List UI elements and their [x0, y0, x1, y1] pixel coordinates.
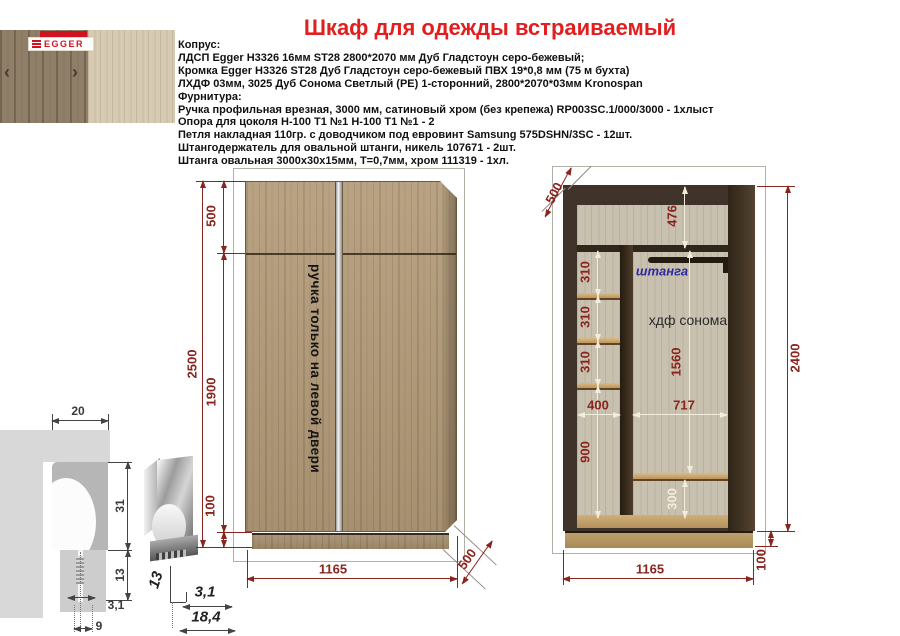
- dim-profile-height: 13: [145, 569, 166, 590]
- interior-plinth: [565, 531, 753, 548]
- dim-line-310b: [597, 296, 598, 341]
- dim-line-front-1900: [223, 253, 224, 532]
- ext-line: [217, 532, 252, 533]
- dim-line-front-100: [223, 532, 224, 547]
- dim-line-handle-13: [127, 550, 128, 600]
- dim-front-doors-height: 1900: [204, 378, 219, 407]
- dim-line-476: [684, 187, 685, 248]
- interior-right-panel: [728, 185, 755, 531]
- ext-line: [217, 253, 245, 254]
- ext-line: [196, 547, 252, 548]
- spec-line: Фурнитура:: [178, 91, 743, 104]
- dim-plinth: 100: [754, 549, 769, 571]
- dim-handle-body-height: 31: [113, 499, 127, 512]
- dim-front-total-height: 2500: [185, 350, 200, 379]
- dim-line-front-500: [223, 181, 224, 253]
- egger-logo-icon: [32, 40, 41, 49]
- dim-shelf-gap-2: 310: [578, 306, 593, 328]
- dim-front-plinth: 100: [203, 495, 218, 517]
- front-plinth: [252, 533, 449, 549]
- dim-line-handle-9: [74, 628, 92, 629]
- spec-line: Штангодержатель для овальной штанги, ник…: [178, 142, 743, 155]
- dim-profile-slot: 3,1: [195, 584, 216, 601]
- dim-line-300: [684, 480, 685, 518]
- rod-bracket: [723, 257, 728, 273]
- spec-line: ЛДСП Egger Н3326 16мм ST28 2800*2070 мм …: [178, 52, 743, 65]
- dim-front-top-section: 500: [204, 205, 219, 227]
- door-note: ручка только на левой двери: [308, 264, 323, 519]
- dim-line-1560: [689, 251, 690, 473]
- dim-height: 2400: [788, 344, 803, 373]
- dim-shelf-gap-3: 310: [578, 351, 593, 373]
- dim-line-310c: [597, 341, 598, 386]
- handle-3d-serration: [156, 549, 186, 560]
- dim-line-handle-slot: [68, 597, 95, 598]
- spec-line: Петля накладная 110гр. с доводчиком под …: [178, 129, 743, 142]
- front-side-shade: [442, 182, 456, 531]
- screw-axis-line: [80, 552, 81, 632]
- ext-line: [755, 546, 778, 547]
- sketch-leader: [172, 602, 173, 628]
- section-panel-top: [0, 430, 110, 462]
- dim-line-400: [578, 414, 620, 415]
- dim-line-profile-width: [180, 630, 235, 631]
- dim-line-plinth-100: [770, 531, 771, 546]
- ext-line: [247, 550, 248, 588]
- sketch-line: [186, 592, 187, 602]
- dim-handle-top-width: 20: [71, 404, 84, 418]
- dim-right-width: 717: [673, 398, 695, 413]
- drawing-canvas: Шкаф для одежды встраиваемый ‹ › EGGER К…: [0, 0, 900, 636]
- dim-line-interior-width: [563, 578, 753, 579]
- handle-section-body: [52, 462, 108, 550]
- ext-line: [196, 181, 245, 182]
- spec-line: Опора для цоколя Н-100 Т1 №1 Н-100 Т1 №1…: [178, 116, 743, 129]
- spec-line: ЛХДФ 03мм, 3025 Дуб Сонома Светлый (РЕ) …: [178, 78, 743, 91]
- door-gap-right-line: [342, 182, 343, 531]
- sample-prev-icon[interactable]: ‹: [4, 62, 10, 83]
- interior-partition: [620, 245, 633, 515]
- egger-logo-text: EGGER: [44, 39, 84, 49]
- dim-handle-slot: 3,1: [108, 598, 125, 612]
- front-top-divider: [246, 253, 456, 255]
- dim-profile-width: 18,4: [191, 609, 220, 626]
- dim-handle-base: 9: [96, 619, 103, 633]
- dim-line-310a: [597, 251, 598, 296]
- dim-interior-width: 1165: [636, 562, 664, 577]
- dim-front-width: 1165: [319, 562, 347, 577]
- dim-rod-section: 1560: [669, 348, 684, 377]
- dim-bottom-shelf: 300: [665, 488, 680, 510]
- page-title: Шкаф для одежды встраиваемый: [80, 15, 900, 41]
- right-shelf: [633, 473, 728, 481]
- dim-line-front-2500: [202, 181, 203, 547]
- sketch-line: [170, 566, 171, 602]
- spec-list: Копрус:ЛДСП Egger Н3326 16мм ST28 2800*2…: [178, 39, 743, 168]
- dim-handle-insert: 13: [113, 568, 127, 581]
- dim-shelf-gap-1: 310: [578, 261, 593, 283]
- dim-left-width: 400: [587, 398, 609, 413]
- dim-top-section: 476: [665, 205, 680, 227]
- dim-line-handle-31: [127, 462, 128, 550]
- front-cabinet: ручка только на левой двери: [245, 181, 457, 532]
- handle-section-curve: [52, 478, 96, 550]
- spec-line: Копрус:: [178, 39, 743, 52]
- section-panel-side: [0, 462, 43, 618]
- wood-samples: ‹ › EGGER: [0, 30, 175, 123]
- dim-line-717: [633, 414, 727, 415]
- egger-logo: EGGER: [28, 37, 94, 51]
- dim-line-handle-20: [52, 420, 108, 421]
- dim-line-front-width: [247, 578, 457, 579]
- spec-line: Кромка Egger Н3326 ST28 Дуб Гладстоун се…: [178, 65, 743, 78]
- wood-sample-sonoma: [88, 30, 175, 123]
- dim-line-profile-slot: [183, 606, 232, 607]
- back-panel-label: хдф сонома: [649, 312, 727, 328]
- rod-label: штанга: [636, 264, 688, 279]
- dim-left-lower: 900: [578, 441, 593, 463]
- spec-line: Ручка профильная врезная, 3000 мм, сатин…: [178, 104, 743, 117]
- sample-next-icon[interactable]: ›: [72, 62, 78, 83]
